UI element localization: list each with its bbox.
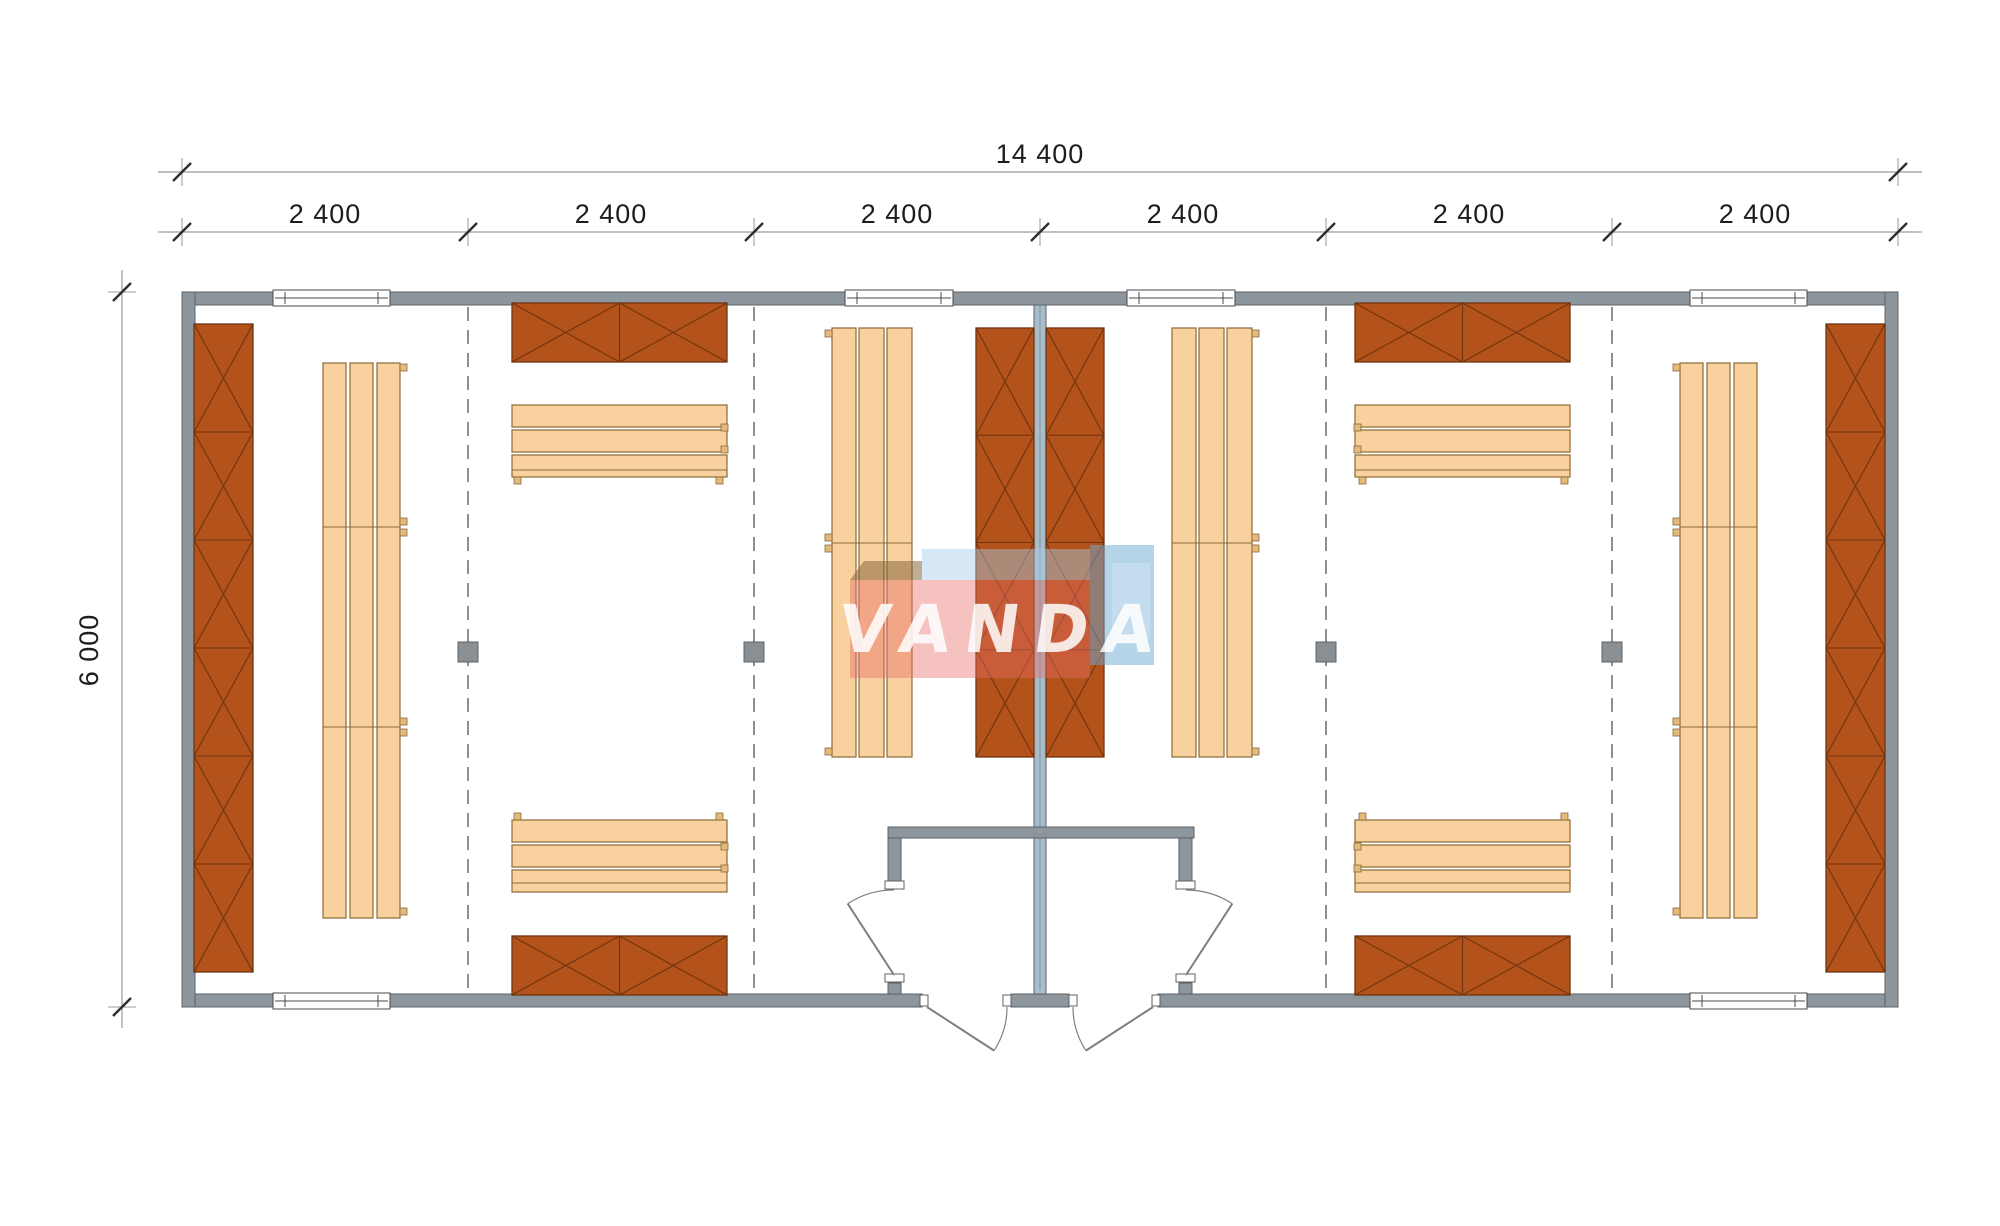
- window: [273, 290, 390, 306]
- dimension-top-overall: 14 400: [158, 139, 1922, 186]
- dimension-segment-label: 2 400: [1433, 199, 1506, 229]
- bench-vertical-module4: [1172, 328, 1259, 757]
- dimension-segment-label: 2 400: [1719, 199, 1792, 229]
- column-post: [458, 642, 478, 662]
- column-post: [744, 642, 764, 662]
- bench-horizontal-module5-bottom: [1354, 813, 1570, 892]
- interior-door-right: [1186, 890, 1232, 975]
- column-post: [1316, 642, 1336, 662]
- floor-plan-canvas: 14 400 2 400 2 400 2 400 2 400 2 400 2 4…: [0, 0, 2000, 1226]
- wardrobe-cabinet-bottom-left: [512, 936, 727, 995]
- bench-vertical-module3: [825, 328, 912, 757]
- dimension-segment-label: 2 400: [861, 199, 934, 229]
- watermark-blue-band: [922, 549, 1090, 580]
- dimension-height-label: 6 000: [74, 614, 104, 687]
- dimension-top-segments: 2 400 2 400 2 400 2 400 2 400 2 400: [158, 199, 1922, 246]
- exterior-door-right: [1073, 1007, 1153, 1051]
- dimension-segment-label: 2 400: [1147, 199, 1220, 229]
- wardrobe-cabinet-right-wall: [1826, 324, 1885, 972]
- dimension-segment-label: 2 400: [575, 199, 648, 229]
- wardrobe-cabinet-center-left: [976, 328, 1034, 757]
- exterior-door-left: [927, 1007, 1007, 1051]
- dimension-overall-label: 14 400: [996, 139, 1085, 169]
- wardrobe-cabinet-left-wall: [194, 324, 253, 972]
- bench-horizontal-module5-top: [1354, 405, 1570, 484]
- bench-horizontal-module2-bottom: [512, 813, 728, 892]
- dimension-left-height: 6 000: [74, 270, 136, 1028]
- interior-door-left: [848, 890, 894, 975]
- window: [845, 290, 953, 306]
- watermark: VANDA: [834, 545, 1174, 678]
- floor-plan: 14 400 2 400 2 400 2 400 2 400 2 400 2 4…: [0, 0, 2000, 1226]
- wardrobe-cabinet-center-right: [1046, 328, 1104, 757]
- dimension-segment-label: 2 400: [289, 199, 362, 229]
- window: [1690, 993, 1807, 1009]
- wardrobe-cabinet-top-right: [1355, 303, 1570, 362]
- window: [1127, 290, 1235, 306]
- bench-vertical-module6: [1673, 363, 1757, 918]
- bench-horizontal-module2-top: [512, 405, 728, 484]
- window: [273, 993, 390, 1009]
- column-post: [1602, 642, 1622, 662]
- wardrobe-cabinet-bottom-right: [1355, 936, 1570, 995]
- watermark-text: VANDA: [834, 590, 1174, 668]
- window: [1690, 290, 1807, 306]
- wardrobe-cabinet-top-left: [512, 303, 727, 362]
- bench-vertical-module1: [323, 363, 407, 918]
